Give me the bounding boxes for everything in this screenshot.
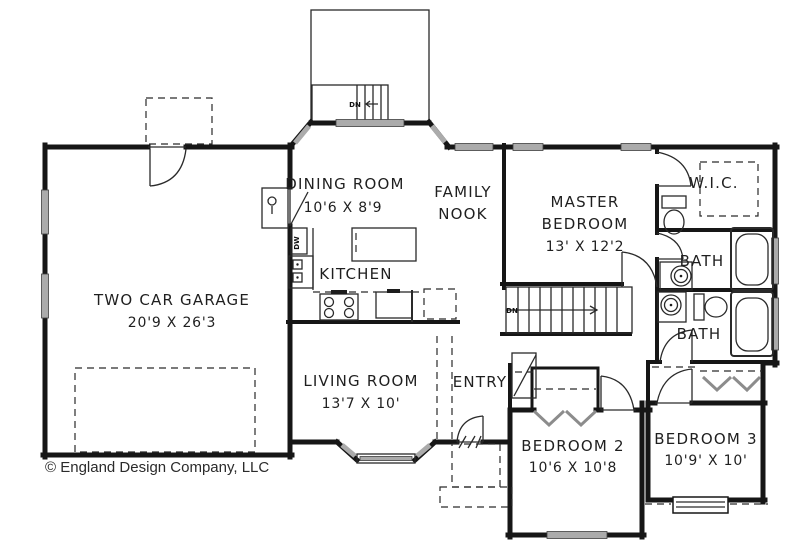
sink-drain-2 [296,276,298,278]
dining-label: DINING ROOM [285,175,404,193]
deck-slider-window [336,120,404,127]
sink-drain-1 [296,263,298,265]
entry-label: ENTRY [453,373,508,391]
bedroom2-window [547,532,607,539]
master-bedroom-dims: 13' X 12'2 [546,239,625,255]
master-bath-label: BATH [680,252,725,270]
bedroom2-label: BEDROOM 2 [521,437,624,455]
copyright-text: © England Design Company, LLC [45,459,269,476]
bedroom2-dims: 10'6 X 10'8 [529,460,617,476]
stairs-down-label: DN [506,307,518,315]
living-room-label: LIVING ROOM [303,372,418,390]
hall-bath-sink-drain [670,304,673,307]
master-bedroom-label-2: BEDROOM [542,215,629,233]
bedroom3-box-window [673,497,728,513]
wic-label: W.I.C. [689,174,739,192]
deck-down-label: DN [349,101,361,109]
faucet-icon [387,289,400,293]
kitchen-label: KITCHEN [319,265,392,283]
dishwasher-label: DW [293,236,301,250]
master-bedroom-label-1: MASTER [551,193,620,211]
dining-dims: 10'6 X 8'9 [304,200,383,216]
garage-window-upper [42,190,49,234]
master-window-right [621,144,651,151]
hall-bath-label: BATH [677,325,722,343]
floor-plan: DN [0,0,800,546]
bedroom3-dims: 10'9' X 10' [664,453,747,469]
family-nook-label-1: FAMILY [434,183,492,201]
master-bath-sink-drain [680,275,683,278]
nook-window [455,144,493,151]
garage-window-lower [42,274,49,318]
garage-dims: 20'9 X 26'3 [128,315,216,331]
bedroom3-label: BEDROOM 3 [654,430,757,448]
stove-handle [331,290,347,294]
living-room-dims: 13'7 X 10' [322,396,401,412]
family-nook-label-2: NOOK [438,205,487,223]
garage-label: TWO CAR GARAGE [93,291,250,309]
bay-window-glass [360,457,412,461]
master-window-left [513,144,543,151]
